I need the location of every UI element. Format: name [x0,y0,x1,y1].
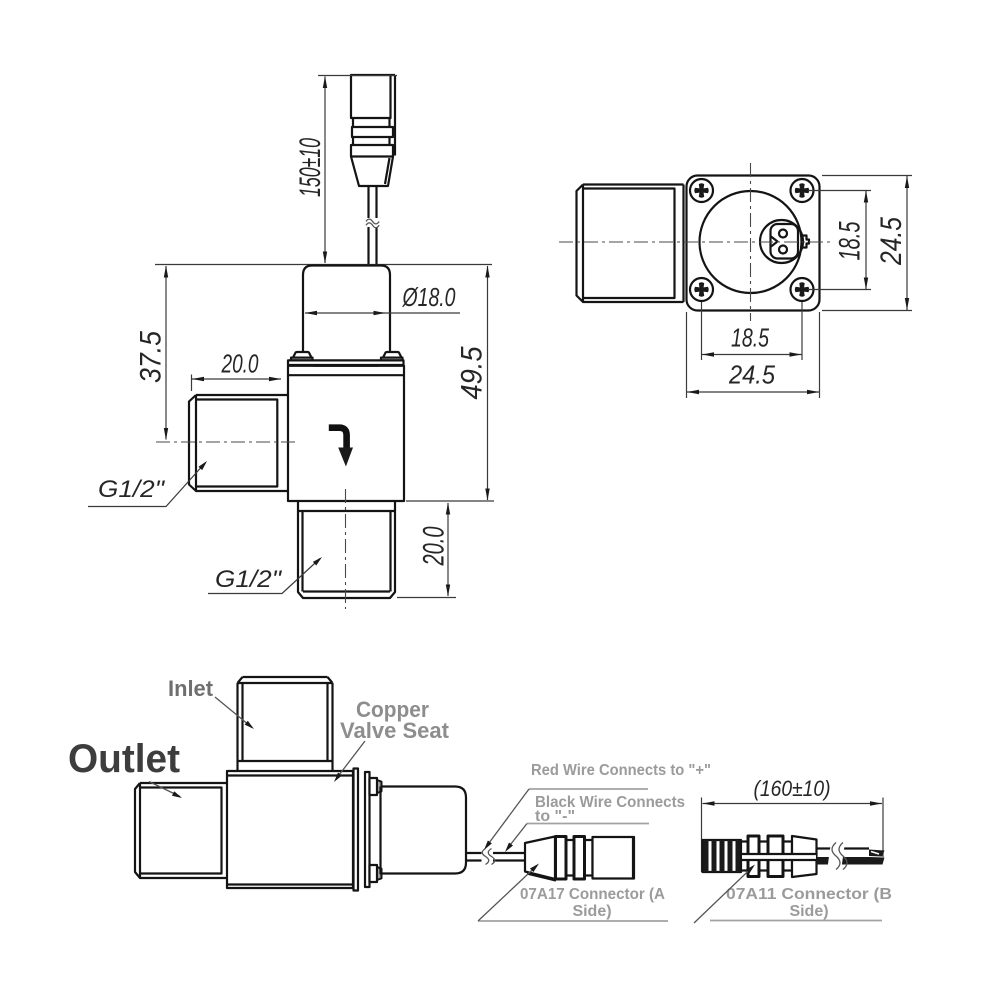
svg-text:to "-": to "-" [535,808,575,825]
svg-text:Side): Side) [789,903,828,920]
svg-text:49.5: 49.5 [456,346,489,399]
svg-text:18.5: 18.5 [834,221,867,260]
svg-text:07A11 Connector (B: 07A11 Connector (B [726,886,892,903]
svg-text:24.5: 24.5 [728,360,775,390]
svg-text:Ø18.0: Ø18.0 [402,282,456,312]
svg-text:Inlet: Inlet [168,676,214,701]
svg-text:20.0: 20.0 [418,526,451,566]
svg-text:Valve Seat: Valve Seat [340,718,450,743]
svg-text:Side): Side) [572,903,611,920]
svg-text:37.5: 37.5 [135,331,168,383]
svg-text:20.0: 20.0 [221,349,259,379]
svg-text:(160±10): (160±10) [754,776,831,801]
svg-text:07A17 Connector (A: 07A17 Connector (A [520,886,665,903]
svg-text:150±10: 150±10 [294,138,327,197]
svg-text:24.5: 24.5 [875,217,908,266]
svg-text:Outlet: Outlet [68,737,180,781]
svg-text:Red Wire Connects to "+": Red Wire Connects to "+" [531,762,711,779]
svg-text:18.5: 18.5 [731,323,769,353]
svg-text:G1/2": G1/2" [98,476,166,503]
svg-text:G1/2": G1/2" [215,566,283,593]
